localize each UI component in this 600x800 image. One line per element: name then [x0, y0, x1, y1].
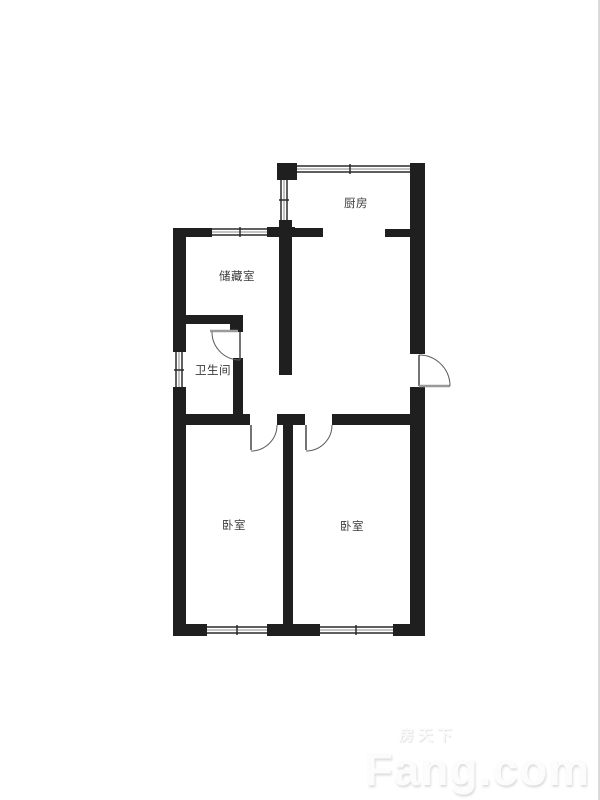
door-bathroom	[210, 331, 240, 360]
floor-plan-drawing: 厨房 储藏室 卫生间 卧室 卧室	[0, 0, 600, 800]
window-kitchen-top	[297, 164, 410, 174]
window-bathroom-left	[174, 352, 184, 387]
watermark-cn-text: 房天下	[399, 729, 590, 744]
window-kitchen-interior	[279, 180, 289, 220]
room-label-bathroom: 卫生间	[195, 363, 231, 377]
floor-plan-image: 厨房 储藏室 卫生间 卧室 卧室 房天下 Fang.com	[0, 0, 600, 800]
wall-segment	[277, 163, 297, 180]
wall-segment	[279, 220, 292, 375]
wall-segment	[277, 414, 305, 425]
door-entry	[419, 355, 450, 386]
walls	[173, 163, 425, 636]
wall-segment	[283, 425, 293, 636]
wall-segment	[173, 414, 250, 425]
wall-segment	[230, 315, 243, 332]
wall-segment	[267, 624, 320, 636]
window-bedroom-left	[207, 625, 267, 635]
door-bedroom-right	[306, 425, 332, 451]
wall-segment	[295, 228, 323, 237]
watermark-logo-text: Fang.com	[365, 746, 590, 792]
wall-segment	[332, 414, 425, 425]
door-bedroom-left	[251, 425, 277, 451]
room-label-bedroom-right: 卧室	[340, 519, 364, 533]
window-storage-top	[212, 227, 267, 237]
room-label-storage: 储藏室	[219, 269, 255, 283]
watermark: 房天下 Fang.com	[365, 729, 590, 792]
window-bedroom-right	[320, 625, 393, 635]
wall-segment	[410, 163, 425, 354]
wall-segment	[173, 228, 212, 237]
wall-segment	[385, 229, 410, 237]
wall-segment	[173, 624, 207, 636]
room-label-bedroom-left: 卧室	[222, 518, 246, 532]
wall-segment	[186, 315, 230, 324]
wall-segment	[393, 624, 425, 636]
room-label-kitchen: 厨房	[344, 197, 368, 210]
wall-segment	[173, 228, 186, 352]
